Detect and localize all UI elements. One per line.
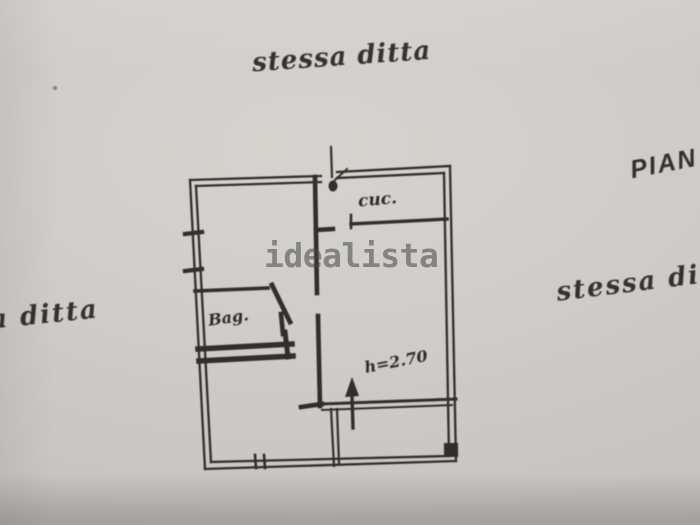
idealista-watermark: idealista (264, 239, 438, 272)
outer-walls (185, 166, 456, 469)
scanned-floor-plan-page: stessa ditta PIAN stessa dit a ditta (0, 0, 700, 525)
interior-walls (195, 177, 456, 466)
scan-speck (53, 86, 57, 90)
corner-pillar (444, 443, 458, 457)
entrance-door (329, 147, 348, 192)
